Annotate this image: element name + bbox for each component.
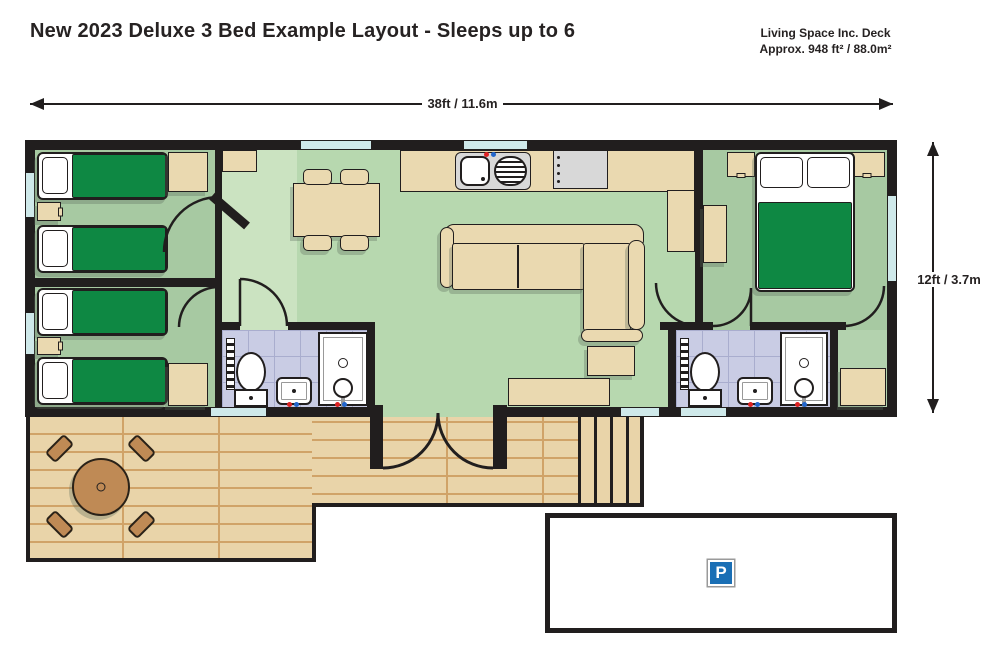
- wardrobe-bedroom1: [168, 152, 208, 192]
- cushion-divider: [517, 245, 519, 288]
- wardrobe-bedroom2: [168, 363, 208, 406]
- shower-head-icon: [338, 358, 348, 368]
- cold-tap-icon: [294, 402, 299, 407]
- hob-control-icon: [557, 180, 560, 183]
- area-note: Living Space Inc. Deck Approx. 948 ft² /…: [728, 25, 923, 57]
- footstool: [587, 346, 635, 376]
- wall-ensuite-right: [830, 322, 838, 407]
- pillow-icon: [42, 293, 68, 330]
- single-bed-4: [37, 357, 168, 405]
- drawer-knob-icon: [862, 173, 871, 178]
- hot-tap-icon: [748, 402, 753, 407]
- dining-chair: [340, 169, 369, 185]
- sofa-chaise: [583, 243, 631, 331]
- gas-hob: [553, 150, 608, 189]
- deck-edge-bottom-right: [312, 503, 644, 507]
- floorplan-canvas: New 2023 Deluxe 3 Bed Example Layout - S…: [0, 0, 1000, 659]
- wall-bedroom1-hall-upper: [215, 150, 222, 197]
- dining-chair: [303, 235, 332, 251]
- single-bed-2: [37, 225, 168, 273]
- wall-ensuite-left: [668, 330, 676, 407]
- toilet-cistern-icon: [234, 389, 268, 407]
- toilet-bowl-icon: [690, 352, 720, 392]
- page-title: New 2023 Deluxe 3 Bed Example Layout - S…: [30, 20, 575, 43]
- towel-radiator-icon: [226, 338, 235, 390]
- duvet-icon: [72, 154, 166, 198]
- window-master: [887, 195, 897, 282]
- arrowhead-left-icon: [30, 98, 44, 110]
- sink-drainer-icon: [494, 156, 527, 186]
- sink-bowl-icon: [460, 156, 490, 186]
- parking-sign-letter: P: [715, 563, 726, 583]
- dining-table: [293, 183, 380, 237]
- pillow-icon: [807, 157, 850, 188]
- cold-tap-icon: [491, 152, 496, 157]
- hob-control-icon: [557, 172, 560, 175]
- toilet-cistern-icon: [688, 389, 722, 407]
- pillow-icon: [42, 362, 68, 399]
- sofa-back: [444, 224, 644, 245]
- bedside-table-master-left: [727, 152, 755, 177]
- patio-door-threshold: [383, 405, 493, 417]
- wall-shower1-right: [367, 322, 375, 407]
- window-bedroom2: [25, 312, 35, 355]
- bedside-table-2: [37, 337, 61, 355]
- wall-bedroom1-hall-lower: [215, 252, 222, 278]
- patio-door-jamb-right: [493, 405, 507, 469]
- flush-button-icon: [249, 396, 253, 400]
- parasol-hole-icon: [97, 483, 106, 492]
- window-dining: [300, 140, 372, 150]
- deck-edge-right: [640, 415, 644, 507]
- duvet-icon: [72, 359, 166, 403]
- hot-tap-icon: [795, 402, 800, 407]
- window-kitchen: [463, 140, 528, 150]
- shower-head-icon: [799, 358, 809, 368]
- washbasin-icon: [737, 377, 773, 405]
- pillow-icon: [760, 157, 803, 188]
- shower-enclosure: [780, 332, 828, 406]
- drain-icon: [481, 177, 485, 181]
- hot-tap-icon: [484, 152, 489, 157]
- bedside-table-1: [37, 202, 61, 221]
- hob-control-icon: [557, 164, 560, 167]
- width-dimension-label: 38ft / 11.6m: [385, 96, 540, 111]
- towel-radiator-icon: [680, 338, 689, 390]
- window-shower1: [210, 407, 267, 417]
- wardrobe-master: [703, 205, 727, 263]
- wall-ensuite-top-left: [660, 322, 713, 330]
- deck-edge-left: [26, 417, 30, 562]
- toilet-bowl-icon: [236, 352, 266, 392]
- deck-edge-bottom-left: [26, 558, 316, 562]
- washbasin-icon: [276, 377, 312, 405]
- wall-shower1-top-left: [215, 322, 240, 330]
- drawer-knob-icon: [737, 173, 746, 178]
- hot-tap-icon: [335, 402, 340, 407]
- wall-shower1-top-right: [288, 322, 375, 330]
- duvet-icon: [758, 202, 852, 289]
- pillow-icon: [42, 157, 68, 194]
- area-note-line1: Living Space Inc. Deck: [728, 25, 923, 41]
- tv-bench: [508, 378, 610, 406]
- cold-tap-icon: [802, 402, 807, 407]
- drawer-knob-icon: [58, 207, 63, 216]
- pillow-icon: [42, 230, 68, 267]
- single-bed-1: [37, 152, 168, 200]
- cold-tap-icon: [755, 402, 760, 407]
- wall-living-master: [695, 150, 703, 283]
- shower-mixer-icon: [333, 378, 353, 398]
- sofa-back-right: [628, 240, 645, 330]
- shower-mixer-icon: [794, 378, 814, 398]
- patio-door-jamb-left: [370, 405, 383, 469]
- deck-table: [72, 458, 130, 516]
- hot-tap-icon: [287, 402, 292, 407]
- sofa-seats: [452, 243, 585, 290]
- shower-enclosure: [318, 332, 368, 406]
- cold-tap-icon: [342, 402, 347, 407]
- hall-cupboard: [222, 150, 257, 172]
- hob-control-icon: [557, 156, 560, 159]
- arrowhead-up-icon: [927, 142, 939, 156]
- depth-dimension-label: 12ft / 3.7m: [893, 272, 1000, 287]
- kitchen-counter-return: [667, 190, 695, 252]
- deck-steps: [578, 417, 640, 503]
- sofa-arm-bottom: [581, 329, 643, 342]
- double-bed: [755, 152, 855, 292]
- area-note-line2: Approx. 948 ft² / 88.0m²: [728, 41, 923, 57]
- deck-edge-step-down: [312, 503, 316, 562]
- arrowhead-right-icon: [879, 98, 893, 110]
- single-bed-3: [37, 288, 168, 336]
- dining-chair: [340, 235, 369, 251]
- drawer-knob-icon: [58, 342, 63, 351]
- window-ensuite: [680, 407, 727, 417]
- window-living-rear: [620, 407, 660, 417]
- flush-button-icon: [703, 396, 707, 400]
- dining-chair: [303, 169, 332, 185]
- drain-icon: [753, 389, 757, 393]
- parking-sign: P: [708, 560, 734, 586]
- arrowhead-down-icon: [927, 399, 939, 413]
- kitchen-counter: [400, 150, 695, 192]
- wall-bedroom2-shower: [215, 327, 222, 407]
- wall-between-twin-bedrooms: [35, 278, 222, 287]
- deck-left: [28, 417, 312, 562]
- duvet-icon: [72, 227, 166, 271]
- duvet-icon: [72, 290, 166, 334]
- drain-icon: [292, 389, 296, 393]
- window-bedroom1: [25, 172, 35, 218]
- wardrobe-master-closet: [840, 368, 886, 406]
